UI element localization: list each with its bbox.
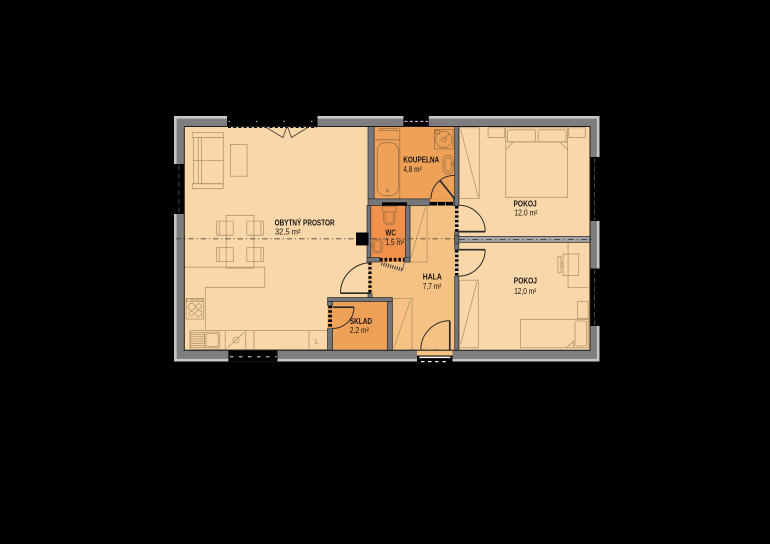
svg-text:WC: WC: [385, 228, 396, 238]
svg-text:2,2 m²: 2,2 m²: [350, 326, 369, 335]
svg-text:L: L: [315, 339, 319, 346]
svg-text:POKOJ: POKOJ: [514, 275, 537, 285]
svg-text:12,0 m²: 12,0 m²: [514, 209, 537, 218]
svg-text:1,5 m²: 1,5 m²: [385, 238, 404, 247]
svg-text:32,5 m²: 32,5 m²: [275, 228, 301, 237]
svg-text:HALA: HALA: [423, 272, 442, 282]
svg-text:12,0 m²: 12,0 m²: [514, 287, 536, 296]
svg-text:POKOJ: POKOJ: [514, 198, 537, 208]
svg-text:KOUPELNA: KOUPELNA: [403, 155, 439, 165]
svg-text:OBYTNÝ PROSTOR: OBYTNÝ PROSTOR: [275, 216, 336, 227]
svg-text:7,7 m²: 7,7 m²: [423, 282, 442, 291]
svg-text:SKLAD: SKLAD: [350, 316, 372, 326]
svg-text:4,8 m²: 4,8 m²: [403, 165, 422, 174]
